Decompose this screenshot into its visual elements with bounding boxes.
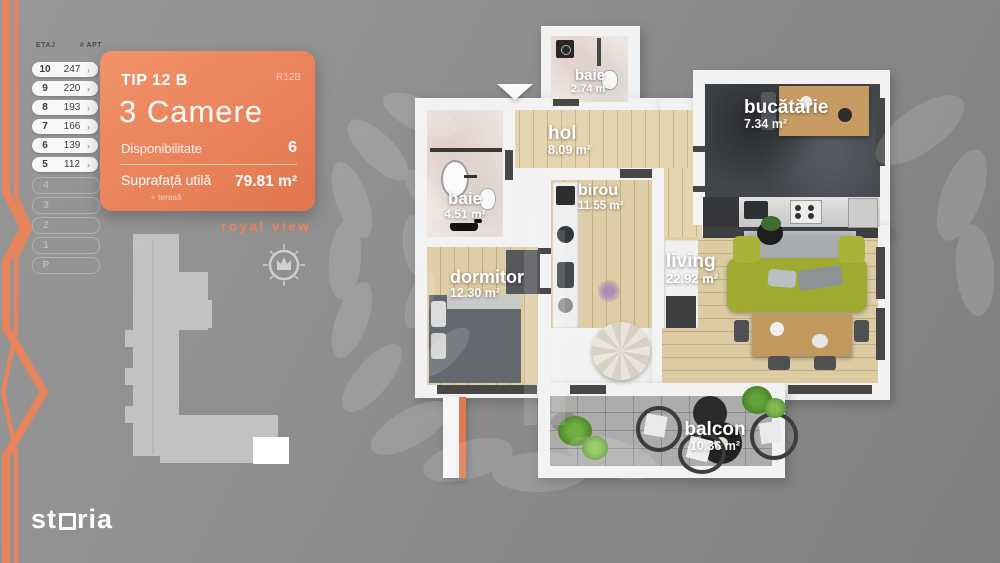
balcony-plant bbox=[764, 398, 786, 418]
kitchen-door-frame bbox=[693, 186, 705, 192]
storia-logo-text: st bbox=[31, 504, 57, 535]
highlighted-unit[interactable] bbox=[253, 437, 289, 464]
apartment-info-card: TIP 12 B R12B 3 Camere Disponibilitate 6… bbox=[100, 51, 315, 211]
knit-pouf bbox=[592, 322, 650, 380]
floor-row-3-disabled: 3 bbox=[32, 197, 100, 214]
chevron-right-icon: › bbox=[87, 103, 90, 113]
flowers bbox=[598, 280, 620, 302]
kitchen-window bbox=[876, 98, 885, 166]
table-decor bbox=[812, 334, 828, 348]
pillow bbox=[431, 333, 446, 359]
living-window bbox=[876, 247, 885, 299]
dining-chair bbox=[734, 320, 749, 342]
room-label-balcon: balcon 10.36 m² bbox=[660, 420, 770, 453]
floor-row-p-disabled: P bbox=[32, 257, 100, 274]
card-divider bbox=[120, 164, 297, 165]
shower-glass bbox=[430, 148, 502, 152]
office-door bbox=[620, 169, 654, 178]
balcony-plant bbox=[582, 436, 608, 460]
royal-view-crown-icon bbox=[252, 236, 312, 294]
table-decor bbox=[770, 322, 784, 336]
usable-area-label: Suprafață utilă bbox=[121, 172, 211, 188]
bathroom-bedroom-wall bbox=[427, 237, 538, 247]
bedroom-window bbox=[437, 385, 537, 394]
stove bbox=[790, 200, 822, 224]
bathtub-icon bbox=[450, 223, 478, 231]
corridor-dresser-dark bbox=[666, 296, 696, 328]
storia-logo: stria bbox=[31, 504, 113, 535]
kitchen-door-frame bbox=[693, 146, 705, 152]
storia-o-icon bbox=[59, 513, 76, 530]
dining-chair bbox=[814, 356, 836, 370]
dining-chair bbox=[854, 320, 869, 342]
terrace-sublabel: + terasă bbox=[121, 192, 211, 202]
apt-column-header: # APT bbox=[80, 42, 102, 49]
floor-row-4-disabled: 4 bbox=[32, 177, 100, 194]
availability-label: Disponibilitate bbox=[121, 141, 202, 156]
floor-row-5[interactable]: 5112› bbox=[32, 157, 98, 172]
project-name: royal view bbox=[221, 219, 311, 234]
floor-row-8[interactable]: 8193› bbox=[32, 100, 98, 115]
floor-row-7[interactable]: 7166› bbox=[32, 119, 98, 134]
floor-row-2-disabled: 2 bbox=[32, 217, 100, 234]
bathroom-large-door bbox=[505, 150, 513, 180]
sofa-cushion bbox=[838, 236, 865, 263]
bathroom-small-door bbox=[553, 99, 579, 106]
living-balcony-door bbox=[788, 385, 872, 394]
sofa-cushion bbox=[733, 236, 760, 263]
rooms-title: 3 Camere bbox=[119, 94, 263, 130]
room-label-baie-large: baie 4.51 m² bbox=[427, 190, 503, 220]
sofa bbox=[727, 258, 867, 312]
sink-tap bbox=[464, 175, 477, 178]
section-pillar-accent bbox=[459, 397, 466, 478]
room-label-baie-small: baie 2.74 m² bbox=[550, 68, 630, 95]
chevron-right-icon: › bbox=[87, 141, 90, 151]
entrance-arrow-icon bbox=[497, 84, 533, 100]
etaj-column-header: ETAJ bbox=[36, 42, 55, 49]
vanity-counter bbox=[597, 38, 601, 66]
floor-row-10[interactable]: 10247› bbox=[32, 62, 98, 77]
office-living-wall bbox=[652, 168, 664, 328]
plant bbox=[761, 216, 781, 231]
floorplan-poster: ETAJ # APT 10247› 9220› 8193› 7166› 6139… bbox=[0, 0, 1000, 563]
room-label-bucatarie: bucătărie 7.34 m² bbox=[744, 98, 828, 131]
room-label-living: living 22.92 m² bbox=[666, 252, 718, 286]
table-setting bbox=[838, 108, 852, 122]
chevron-right-icon: › bbox=[87, 65, 90, 75]
office-appliance bbox=[557, 262, 574, 288]
room-label-dormitor: dormitor 12.30 m² bbox=[450, 268, 524, 300]
chevron-right-icon: › bbox=[87, 160, 90, 170]
office-appliance bbox=[557, 226, 574, 243]
floor-row-9[interactable]: 9220› bbox=[32, 81, 98, 96]
sofa-pillow bbox=[767, 269, 796, 288]
office-stool bbox=[558, 298, 573, 313]
floor-row-6[interactable]: 6139› bbox=[32, 138, 98, 153]
chevron-right-icon: › bbox=[87, 122, 90, 132]
availability-value: 6 bbox=[288, 139, 297, 157]
storia-logo-text: ria bbox=[77, 504, 113, 535]
pillow bbox=[431, 301, 446, 327]
chevron-right-icon: › bbox=[87, 84, 90, 94]
balcony-door bbox=[570, 385, 606, 394]
room-label-hol: hol 8.09 m² bbox=[548, 124, 591, 157]
living-window bbox=[876, 308, 885, 360]
apartment-code: R12B bbox=[276, 72, 301, 83]
washer-door bbox=[561, 45, 571, 55]
fridge bbox=[848, 198, 878, 228]
office-appliance bbox=[556, 186, 575, 205]
dining-chair bbox=[768, 356, 790, 370]
usable-area-value: 79.81 m² bbox=[235, 173, 297, 202]
floor-row-1-disabled: 1 bbox=[32, 237, 100, 254]
kitchen-cabinet-dark bbox=[703, 197, 739, 227]
dining-table bbox=[752, 314, 852, 356]
apartment-type: TIP 12 B bbox=[121, 72, 188, 90]
room-label-birou: birou 11.55 m² bbox=[578, 183, 623, 212]
